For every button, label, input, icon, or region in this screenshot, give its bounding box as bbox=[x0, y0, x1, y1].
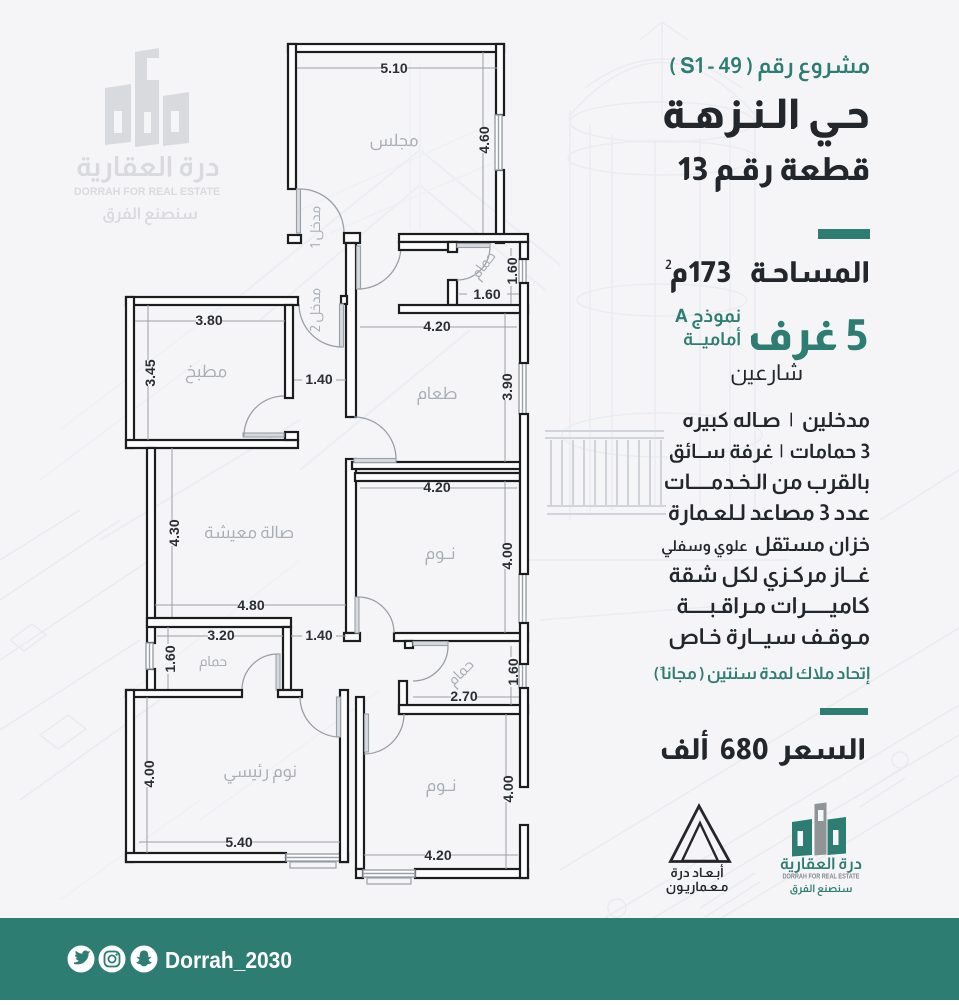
svg-text:3.45: 3.45 bbox=[142, 359, 158, 386]
svg-text:1.60: 1.60 bbox=[162, 645, 178, 672]
svg-text:2.70: 2.70 bbox=[450, 688, 477, 704]
svg-text:3.80: 3.80 bbox=[195, 312, 222, 328]
svg-text:4.20: 4.20 bbox=[423, 318, 450, 334]
svg-text:1.60: 1.60 bbox=[505, 658, 521, 685]
svg-text:4.60: 4.60 bbox=[476, 126, 492, 153]
svg-text:5.40: 5.40 bbox=[225, 834, 252, 850]
svg-text:4.00: 4.00 bbox=[499, 542, 515, 569]
svg-text:Dorrah_2030: Dorrah_2030 bbox=[165, 947, 292, 973]
svg-text:3.20: 3.20 bbox=[207, 627, 234, 643]
svg-text:3.90: 3.90 bbox=[499, 373, 515, 400]
svg-text:1.60: 1.60 bbox=[473, 286, 500, 302]
svg-text:4.30: 4.30 bbox=[166, 519, 182, 546]
svg-text:1.60: 1.60 bbox=[504, 257, 520, 284]
svg-text:4.20: 4.20 bbox=[424, 847, 451, 863]
svg-text:DORRAH FOR REAL ESTATE: DORRAH FOR REAL ESTATE bbox=[74, 186, 220, 198]
svg-text:4.80: 4.80 bbox=[237, 597, 264, 613]
svg-text:4.00: 4.00 bbox=[500, 775, 516, 802]
svg-text:1.40: 1.40 bbox=[305, 627, 332, 643]
svg-text:1.40: 1.40 bbox=[305, 371, 332, 387]
svg-text:4.00: 4.00 bbox=[141, 760, 157, 787]
svg-text:5.10: 5.10 bbox=[380, 60, 407, 76]
svg-text:DORRAH FOR REAL ESTATE: DORRAH FOR REAL ESTATE bbox=[783, 874, 860, 881]
svg-text:4.20: 4.20 bbox=[423, 479, 450, 495]
